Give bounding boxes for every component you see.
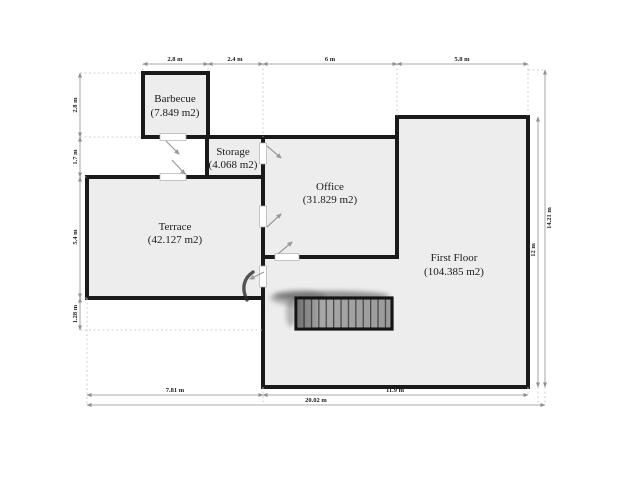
stairs-shading — [298, 300, 390, 327]
room-name-label: Office — [316, 181, 344, 193]
dim-label-left-2: 5.4 m — [72, 229, 79, 245]
dim-label-left-0: 2.8 m — [72, 97, 79, 113]
dim-label-right-inner: 12 m — [530, 243, 537, 257]
dim-label-bottom-2: 20.02 m — [305, 397, 327, 404]
dim-label-top-1: 2.4 m — [227, 56, 243, 63]
dim-label-right-outer: 14.21 m — [546, 207, 553, 229]
floor-plan-page: 2.8 m 2.4 m 6 m 5.8 m 2.8 m 1.7 m 5.4 m … — [0, 0, 634, 480]
walls-and-rooms — [87, 73, 528, 387]
door-opening — [260, 266, 267, 287]
room-area-label: (31.829 m2) — [303, 194, 358, 206]
door-opening — [160, 134, 186, 141]
dim-label-bottom-0: 7.81 m — [166, 387, 185, 394]
barbecue-outline — [143, 73, 208, 137]
door-opening — [275, 254, 299, 261]
dim-label-top-2: 6 m — [325, 56, 336, 63]
dim-label-left-1: 1.7 m — [72, 149, 79, 165]
room-name-label: Terrace — [159, 221, 192, 233]
door-opening — [260, 143, 267, 164]
door-arrow — [166, 141, 179, 154]
staircase — [270, 290, 392, 329]
dim-label-top-3: 5.8 m — [454, 56, 470, 63]
room-area-label: (104.385 m2) — [424, 266, 484, 278]
dim-label-top-0: 2.8 m — [167, 56, 183, 63]
room-area-label: (7.849 m2) — [151, 107, 200, 119]
dim-label-bottom-1: 11.9 m — [386, 387, 405, 394]
room-area-label: (42.127 m2) — [148, 234, 203, 246]
room-name-label: First Floor — [431, 252, 478, 264]
dim-label-left-3: 1.28 m — [72, 304, 79, 323]
room-name-label: Storage — [216, 146, 250, 158]
door-arrow — [172, 160, 185, 174]
room-name-label: Barbecue — [154, 93, 196, 105]
door-opening — [260, 206, 267, 227]
door-opening — [160, 174, 186, 181]
floor-plan-canvas: 2.8 m 2.4 m 6 m 5.8 m 2.8 m 1.7 m 5.4 m … — [0, 0, 634, 480]
room-area-label: (4.068 m2) — [209, 159, 258, 171]
